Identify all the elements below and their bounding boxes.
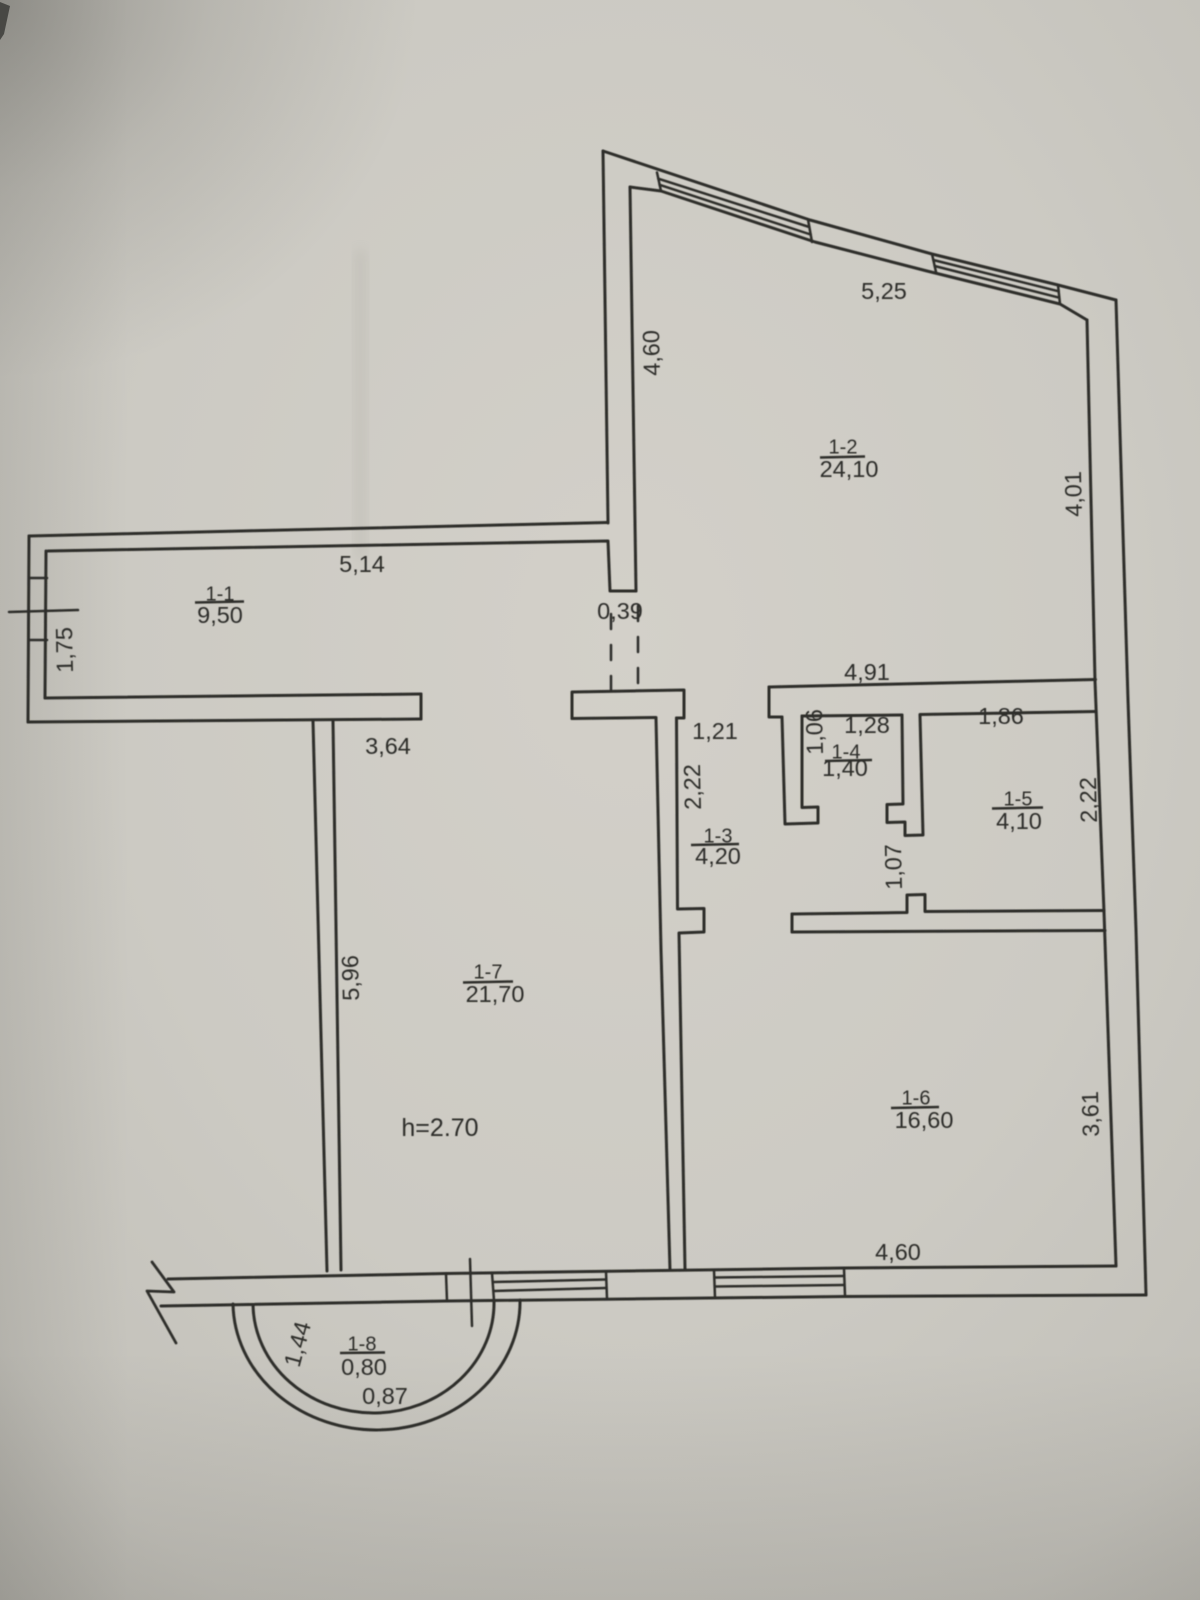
svg-text:1,40: 1,40 [822, 755, 868, 781]
svg-text:2,22: 2,22 [1075, 777, 1102, 823]
svg-text:4,01: 4,01 [1060, 471, 1087, 517]
svg-text:4,20: 4,20 [695, 843, 741, 869]
svg-text:0,80: 0,80 [341, 1354, 387, 1380]
svg-text:9,50: 9,50 [197, 602, 243, 628]
svg-text:1,06: 1,06 [801, 709, 828, 755]
svg-text:5,14: 5,14 [339, 551, 385, 577]
svg-text:16,60: 16,60 [895, 1107, 954, 1133]
svg-text:4,60: 4,60 [638, 330, 665, 376]
svg-text:4,91: 4,91 [844, 659, 890, 685]
svg-text:1,07: 1,07 [880, 844, 907, 890]
svg-text:1,28: 1,28 [844, 712, 890, 738]
svg-text:0,39: 0,39 [597, 598, 643, 624]
svg-text:1,21: 1,21 [692, 718, 738, 744]
svg-text:24,10: 24,10 [820, 456, 879, 482]
svg-text:4,10: 4,10 [996, 808, 1042, 834]
svg-text:0,87: 0,87 [362, 1383, 408, 1409]
svg-text:5,25: 5,25 [861, 278, 907, 304]
svg-text:4,60: 4,60 [875, 1239, 921, 1265]
svg-text:h=2.70: h=2.70 [401, 1114, 478, 1142]
svg-text:3,64: 3,64 [365, 733, 411, 759]
svg-text:1,86: 1,86 [978, 703, 1024, 729]
svg-text:2,22: 2,22 [679, 764, 706, 810]
svg-text:21,70: 21,70 [466, 981, 525, 1007]
svg-text:1,75: 1,75 [51, 627, 78, 673]
svg-text:3,61: 3,61 [1077, 1091, 1104, 1137]
svg-text:5,96: 5,96 [337, 955, 364, 1001]
